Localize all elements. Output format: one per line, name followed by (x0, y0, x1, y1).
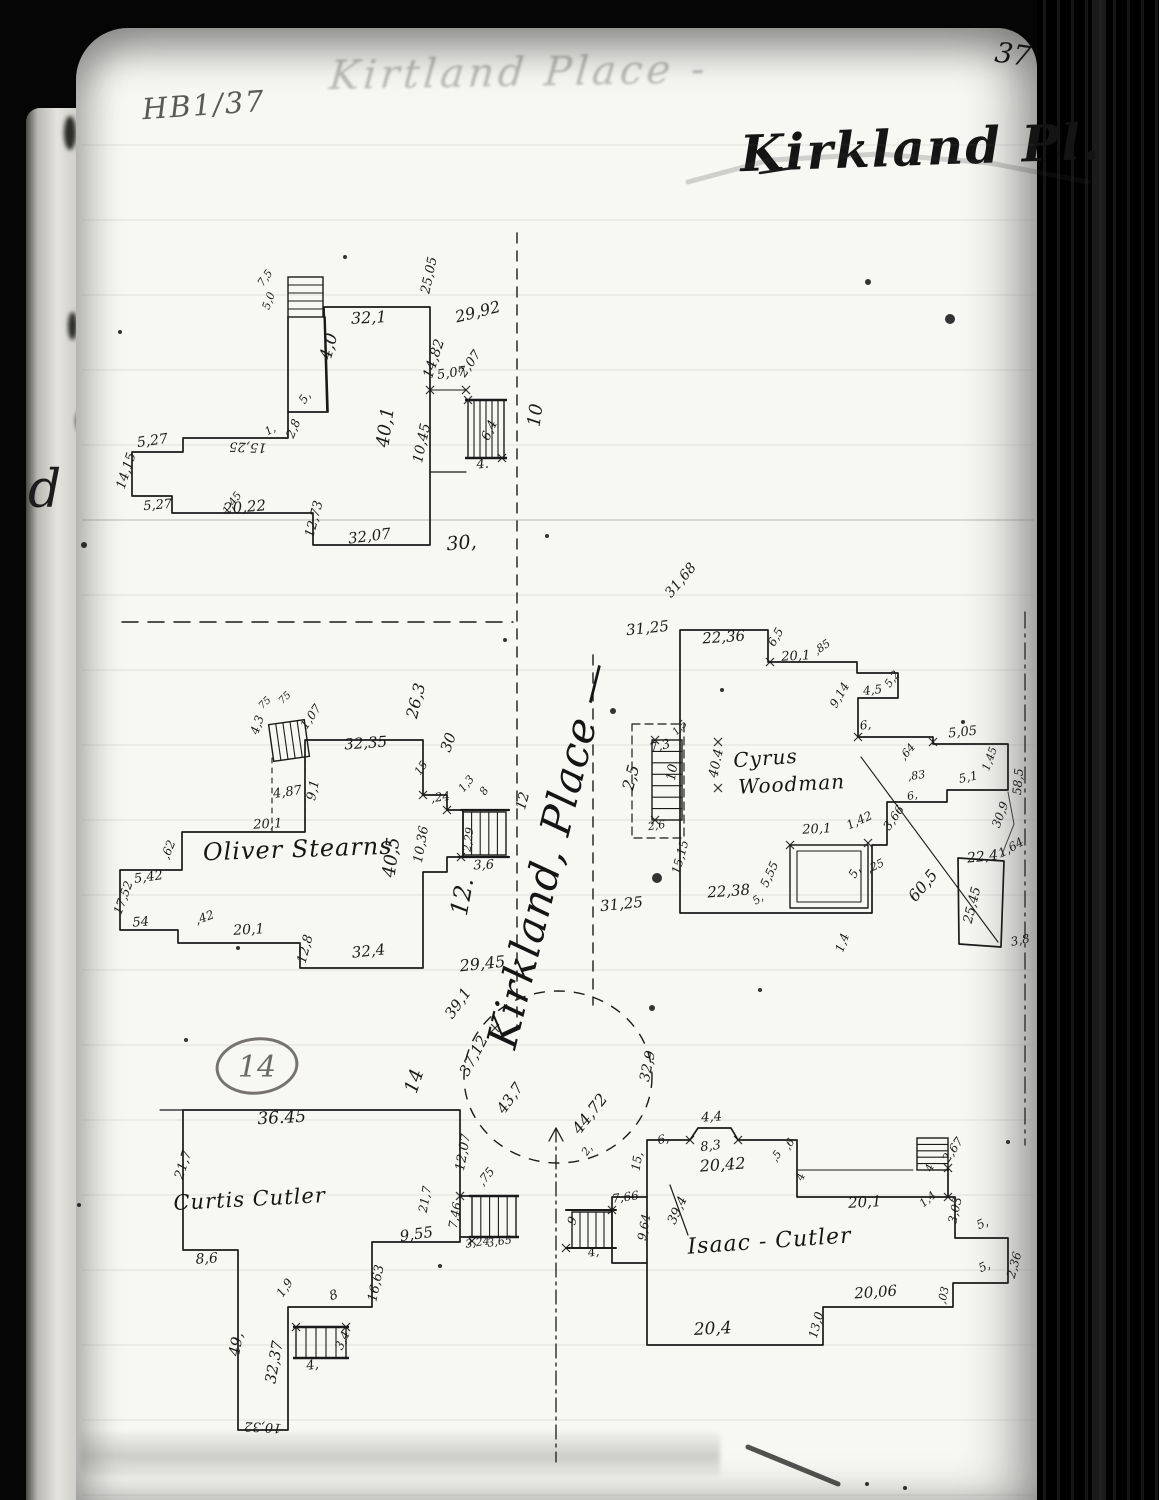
owner-cyrus-woodman-line2: Woodman (738, 769, 846, 799)
dimension-label: 1,9 (274, 1276, 297, 1300)
dimension-label: 15,15 (669, 839, 691, 876)
dimension-label: 4. (475, 457, 490, 473)
dimension-label: 8,6 (195, 1250, 218, 1268)
dimension-label: 15,25 (229, 438, 267, 454)
street-small-number: 12 (513, 790, 533, 811)
dimension-label: 5,2 (882, 668, 903, 690)
dimension-label: 4,4 (700, 1109, 723, 1125)
dimension-label: ,6 (781, 1136, 798, 1152)
ink-swoosh (688, 154, 1088, 182)
building1-stairs-part (288, 277, 323, 317)
owner-curtis-cutler: Curtis Cutler (173, 1183, 327, 1215)
dimension-label: 58,5 (1010, 768, 1026, 796)
dimension-label: 6, (906, 788, 919, 803)
dimension-label: 32,1 (350, 307, 387, 328)
dimension-label: 4,87 (271, 783, 303, 802)
dimension-label: 29,92 (452, 297, 502, 327)
plan-canvas: 1425,051030,26,33012.29,4539,137,1243,74… (0, 0, 1159, 1500)
dimension-label: 75 (277, 690, 294, 707)
dimension-label: 43,7 (492, 1079, 527, 1118)
ink-speck (652, 873, 662, 883)
dimension-label: 30, (445, 531, 477, 556)
dimension-label: 20,22 (221, 496, 266, 518)
dimension-label: 22,38 (706, 881, 751, 902)
dimension-label: 2,36 (1004, 1250, 1025, 1281)
dimension-label: 12. (445, 875, 479, 917)
dimension-label: 10,36 (411, 825, 432, 864)
ink-speck (503, 638, 507, 642)
dimension-label: 20,1 (232, 921, 265, 939)
dimension-label: 15, (629, 1151, 646, 1172)
dimension-label: ,03 (935, 1285, 951, 1305)
dimension-label: 9,1 (304, 779, 323, 802)
ink-speck (184, 1038, 188, 1042)
dimension-label: ,85 (811, 637, 833, 658)
dimension-label: 20,42 (698, 1153, 746, 1175)
dimension-label: 40.4 (706, 748, 727, 780)
dimension-label: 54 (132, 914, 150, 930)
dimension-label: ,5 (768, 1148, 785, 1164)
ink-smudge-line (748, 1447, 838, 1484)
owner-isaac-cutler: Isaac - Cutler (686, 1223, 853, 1260)
lot-14-circled-number: 14 (238, 1050, 276, 1085)
dimension-label: 3,66 (880, 802, 907, 832)
dimension-label: 44,72 (567, 1090, 611, 1139)
ink-speck (81, 542, 87, 548)
dimension-label: 32,9 (637, 1049, 659, 1083)
dimension-label: 25,45 (961, 885, 985, 926)
dimension-label: 20,1 (780, 648, 811, 665)
dimension-label: 5,0 (260, 290, 278, 311)
dimension-label: 10 (524, 402, 548, 428)
dimension-label: 32,07 (347, 524, 392, 547)
dimension-label: 22,4 (965, 847, 999, 866)
building5-left-steps-part (572, 1212, 612, 1248)
dimension-label: 30 (437, 730, 461, 755)
dimension-label: 5, (974, 1215, 990, 1233)
dimension-label: 7,46 (446, 1201, 464, 1230)
dimension-label: 1,07 (297, 701, 324, 731)
dimension-label: 2,5 (618, 763, 643, 793)
dimension-label: 26,3 (402, 681, 429, 721)
ink-speck (438, 1264, 442, 1268)
dimension-label: 49, (225, 1331, 247, 1359)
dimension-label: 5, (976, 1258, 992, 1276)
dimension-label: 36.45 (257, 1107, 307, 1130)
ink-speck (118, 330, 122, 334)
dimension-label: 20,06 (853, 1282, 899, 1303)
ink-speck (236, 946, 240, 950)
dimension-label: 17,52 (111, 879, 136, 916)
dimension-label: 7,5 (255, 267, 276, 289)
ink-speck (945, 314, 955, 324)
dimension-label: 5,27 (143, 497, 174, 515)
building2-stairs-part (290, 722, 295, 759)
dimension-label: 22,36 (701, 627, 747, 648)
dimension-label: 20,1 (801, 821, 832, 838)
owner-cyrus-woodman-line1: Cyrus (733, 744, 799, 772)
dimension-label: 40,1 (372, 406, 399, 450)
dimension-label: 32,37 (261, 1339, 286, 1385)
dimension-label: ,83 (907, 768, 926, 783)
dimension-label: 1,5 (671, 719, 690, 738)
dimension-label: 3,8 (1009, 931, 1031, 949)
dimension-label: 6, (859, 717, 872, 732)
dimension-label: 7,66 (611, 1188, 640, 1206)
dimension-label: 16,63 (365, 1264, 387, 1304)
dimension-label: 1,4 (832, 931, 852, 954)
ink-speck (758, 988, 762, 992)
dimension-label: ,64 (897, 741, 918, 763)
dimension-label: 1,42 (844, 808, 874, 832)
building2-stairs-part (283, 723, 288, 760)
ink-speck (961, 720, 965, 724)
dimension-label: ,75 (474, 1165, 497, 1189)
dimension-label: 31,25 (599, 893, 644, 915)
owner-oliver-stearns: Oliver Stearns (202, 832, 393, 867)
ink-speck (720, 688, 724, 692)
dimension-label: 4, (304, 1357, 319, 1374)
dimension-label: 32,35 (344, 733, 388, 754)
dimension-label: 5,27 (136, 431, 169, 451)
building4-porch-part (472, 1196, 516, 1237)
dimension-label: ,42 (193, 907, 216, 927)
ink-speck (649, 1005, 655, 1011)
dimension-label: 31,25 (625, 617, 670, 639)
dimension-label: ,24 (430, 789, 451, 806)
ink-speck (1006, 1140, 1010, 1144)
dimension-label: 20,1 (252, 816, 283, 833)
dimension-label: 5,55 (757, 859, 781, 889)
dimension-label: 8 (327, 1287, 340, 1304)
dimension-label: 1,45 (979, 745, 1000, 772)
dimension-label: 2,67 (939, 1134, 967, 1165)
dimension-label: 60,5 (904, 866, 941, 906)
dimension-label: 39,4 (665, 1194, 691, 1227)
dimension-label: ,62 (158, 838, 178, 861)
dimension-label: 9,14 (827, 680, 852, 710)
dimension-label: 30,9 (989, 799, 1011, 829)
building4-porch (469, 1196, 519, 1237)
dimension-label: 4,5 (861, 682, 882, 698)
dimension-label: 5,42 (133, 868, 164, 887)
scanned-page: d Kirtland Place - Kirkland Pl. HB1/37 3… (0, 0, 1159, 1500)
lot-14-small: 14 (400, 1066, 428, 1096)
ink-speck (865, 279, 871, 285)
dimension-label: 39,1 (441, 984, 475, 1022)
dimension-label: 75 (257, 695, 274, 712)
title-dash (760, 168, 792, 173)
ink-speck (77, 1203, 81, 1207)
ink-speck (610, 708, 616, 714)
dimension-label: 1,64 (996, 835, 1026, 860)
dimension-label: 8 (477, 784, 492, 797)
dimension-label: 12,07 (453, 1132, 474, 1172)
ink-speck (903, 1486, 907, 1490)
ink-speck (545, 534, 549, 538)
dimension-label: 5,1 (957, 768, 979, 786)
dimension-label: 3,65 (486, 1233, 512, 1249)
dimension-label: 2,6 (646, 818, 666, 833)
dimension-label: 3,4 (332, 1329, 353, 1352)
building1-stairs (288, 277, 323, 317)
dimension-label: 1, (262, 422, 278, 439)
dimension-label: 9,64 (635, 1213, 653, 1242)
dimension-label: 10 (664, 763, 682, 782)
dimension-label: 1,4 (917, 1189, 939, 1210)
dimension-label: 8,3 (700, 1138, 722, 1155)
dimension-label: 14,15 (114, 451, 140, 491)
dimension-label: 12,73 (303, 499, 327, 539)
dimension-label: 21,7 (172, 1148, 196, 1182)
dimension-label: 2,29 (460, 827, 476, 854)
dimension-label: 20,4 (692, 1318, 732, 1340)
building2-stairs-part (276, 724, 281, 761)
dimension-label: 21,7 (416, 1185, 435, 1215)
dimension-label: 20,1 (847, 1192, 882, 1212)
dimension-label: 15 (412, 759, 431, 778)
dimension-label: 12,8 (295, 933, 317, 965)
dimension-label: 5, (296, 389, 314, 406)
dimension-label: 4,3 (247, 713, 267, 737)
dimension-label: 3,03 (945, 1195, 964, 1224)
dimension-label: 5, (750, 891, 766, 908)
dimension-label: 3,6 (473, 857, 494, 873)
building5-left-steps (572, 1212, 612, 1248)
ink-speck (343, 255, 347, 259)
dimension-label: 25,05 (418, 256, 441, 297)
dimension-label: 4,0 (316, 331, 343, 363)
dimension-label: 6, (656, 1131, 670, 1147)
dimension-label: 32,4 (351, 940, 386, 961)
dimension-label: 1,3 (456, 773, 477, 795)
dimension-label: 4, (586, 1244, 600, 1260)
ink-speck (865, 1482, 869, 1486)
dimension-label: 5,05 (947, 724, 977, 742)
dimension-label: 4 (793, 1171, 808, 1183)
dimension-label: 10,32 (244, 1418, 282, 1435)
